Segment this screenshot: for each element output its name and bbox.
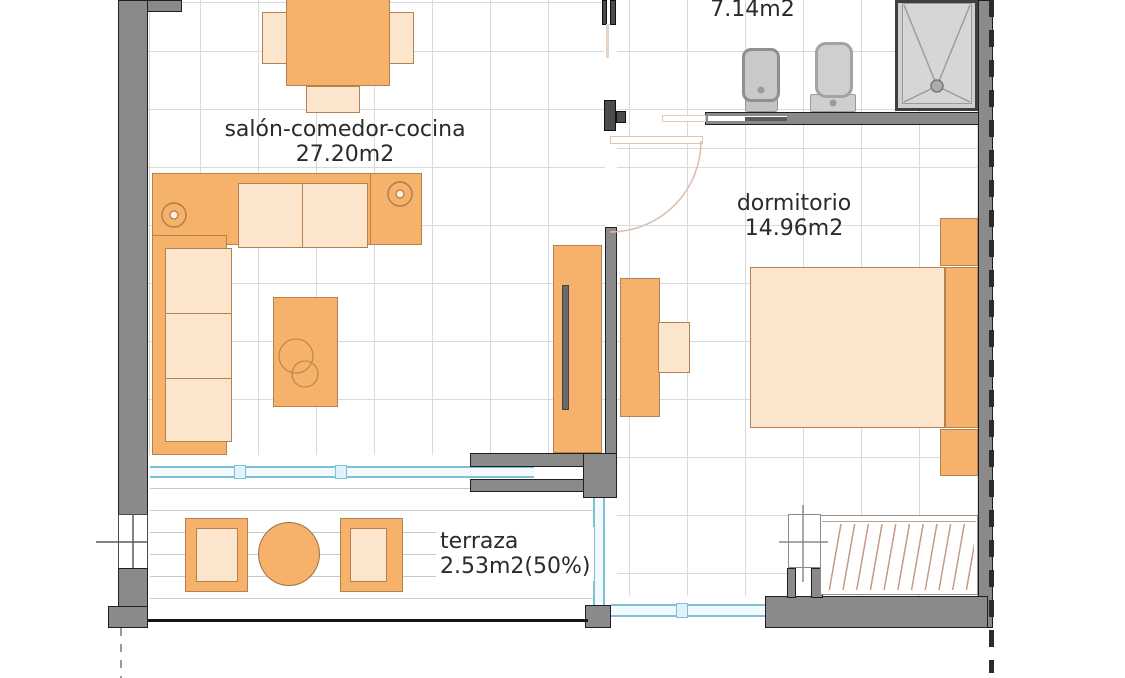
- terrace-se-pillar: [585, 605, 611, 628]
- terrace-bottom-glazing-clip: [676, 603, 688, 618]
- terrace-sw-wall-block: [108, 606, 148, 628]
- left-boundary-dashed-line: [120, 628, 122, 678]
- dining-chair-bottom: [306, 86, 360, 113]
- terrace-label: terraza: [440, 529, 594, 554]
- bedroom-area: 14.96m2: [709, 216, 879, 241]
- sofa-right-corner: [370, 173, 422, 245]
- terrace-pocket-right-block: [583, 453, 617, 498]
- tv-unit: [553, 245, 602, 453]
- tv: [562, 285, 569, 410]
- sofa-left-cushion-divider-2: [166, 378, 231, 379]
- bathroom-door-casing: [662, 115, 706, 122]
- terrace-sliding-door-clip-2: [335, 465, 347, 479]
- bedroom-bottom-wall: [765, 596, 988, 628]
- vent-shaft: [788, 514, 821, 568]
- terrace-chair-1-seat: [196, 528, 238, 582]
- top-door-frame-stub-right: [610, 0, 616, 25]
- bedroom-partition-wall: [605, 227, 617, 455]
- bed-headboard: [945, 267, 978, 428]
- vent-wall-leg-left: [787, 568, 796, 598]
- bidet: [742, 48, 780, 102]
- dining-table: [286, 0, 390, 86]
- terrace-label-block: terraza 2.53m2(50%): [436, 527, 594, 581]
- terrace-pocket-bottom-bar: [470, 479, 585, 492]
- coffee-table: [273, 297, 338, 407]
- dresser-stool: [658, 322, 690, 373]
- sofa-top-cushions: [238, 183, 368, 248]
- dining-chair-right: [389, 12, 414, 64]
- left-window: [118, 514, 148, 570]
- nightstand-bottom: [940, 429, 978, 476]
- wardrobe-top-line: [822, 521, 976, 522]
- hall-door-jamb: [604, 100, 616, 131]
- toilet: [815, 42, 853, 98]
- wardrobe-hatch: [828, 524, 974, 590]
- plot-boundary-dashed-line: [989, 0, 994, 673]
- living-room-label: salón-comedor-cocina: [180, 117, 510, 142]
- terrace-chair-2-seat: [350, 528, 387, 582]
- vent-wall-gap: [796, 568, 811, 596]
- top-door-frame-line: [606, 24, 609, 58]
- terrace-sliding-door-clip-1: [234, 465, 246, 479]
- shower-tray: [902, 3, 972, 104]
- terrace-bottom-glazing: [611, 604, 765, 617]
- entry-door-leaf: [610, 136, 703, 144]
- bedroom-label-block: dormitorio 14.96m2: [709, 191, 879, 241]
- living-room-area: 27.20m2: [180, 142, 510, 167]
- bed: [750, 267, 945, 428]
- living-room-label-block: salón-comedor-cocina 27.20m2: [180, 117, 510, 167]
- terrace-right-glazing: [593, 497, 605, 607]
- dining-chair-left: [262, 12, 287, 64]
- floorplan-canvas: salón-comedor-cocina 27.20m2 7.14m2 dorm…: [0, 0, 1125, 678]
- terrace-table: [258, 522, 320, 586]
- bathroom-pocket-door: [745, 117, 787, 121]
- terrace-bottom-edge: [148, 619, 588, 622]
- terrace-area: 2.53m2(50%): [440, 554, 594, 579]
- nightstand-top: [940, 218, 978, 266]
- bedroom-label: dormitorio: [709, 191, 879, 216]
- dresser: [620, 278, 660, 417]
- sofa-top-cushion-divider: [302, 184, 303, 247]
- bathroom-area: 7.14m2: [695, 0, 810, 22]
- sofa-left-cushions: [165, 248, 232, 442]
- top-door-frame-stub-left: [602, 0, 607, 25]
- hall-door-jamb-tab: [616, 111, 626, 123]
- left-wall-upper: [118, 0, 148, 516]
- sofa-left-cushion-divider-1: [166, 313, 231, 314]
